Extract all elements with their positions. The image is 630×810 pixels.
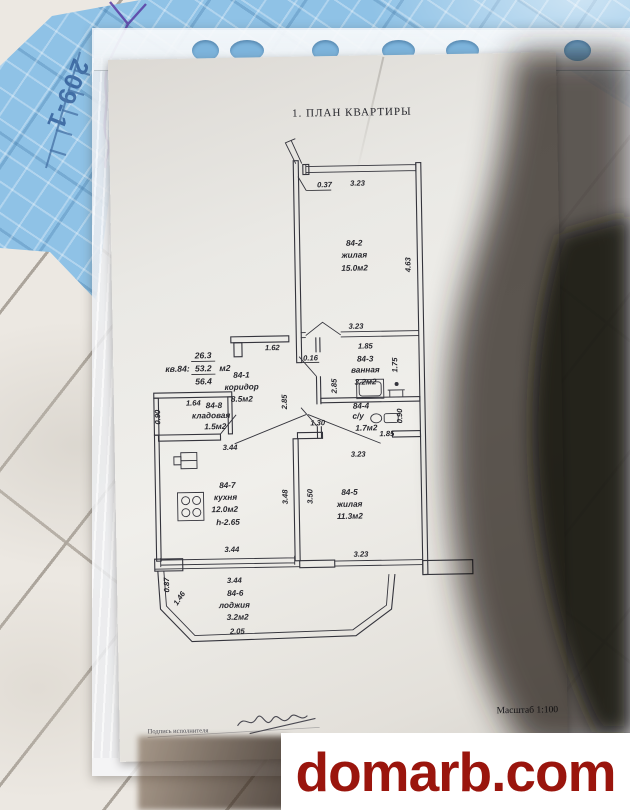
- bottom-shadow: [138, 736, 288, 810]
- watermark-box: domarb.com: [281, 733, 630, 810]
- watermark-text: domarb.com: [295, 740, 615, 804]
- photographer-shadow: [0, 0, 630, 810]
